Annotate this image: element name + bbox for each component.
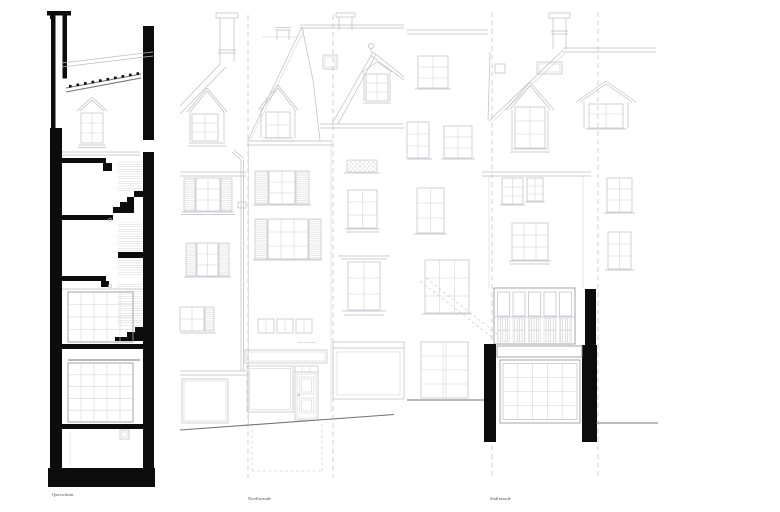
label-nordfassade: Nordfassade (248, 496, 271, 501)
chimney-section (47, 11, 71, 132)
window-b1 (407, 122, 432, 159)
attic-dormer (77, 97, 107, 148)
pediment-window (338, 256, 390, 315)
architectural-sheet: Querschnitt Nordfassade Südfassade (0, 0, 780, 512)
window-grid-lower (68, 360, 140, 422)
window-pair-upper (500, 178, 545, 205)
dormer-window (506, 82, 554, 152)
window-middle (509, 223, 551, 264)
shop-window (247, 366, 293, 412)
label-querschnitt: Querschnitt (52, 492, 74, 497)
stair-dashed-lines (420, 278, 497, 338)
window-mid (345, 190, 380, 232)
party-wall-right (582, 289, 597, 442)
window-c (414, 188, 447, 234)
chimney (336, 13, 355, 30)
label-suedfassade: Südfassade (490, 496, 511, 501)
dormer-window (187, 88, 227, 146)
window-with-shutters-row2 (253, 219, 322, 260)
window-b2 (441, 126, 475, 159)
shopfront-left (180, 371, 246, 423)
left-neighbour-building (180, 13, 246, 423)
shop-sign-band (245, 350, 327, 363)
right-neighbour-building (576, 81, 636, 270)
left-neighbour-building (407, 30, 497, 398)
window-i (605, 232, 634, 270)
small-window-row (258, 319, 312, 333)
dormer-window (258, 85, 298, 141)
chimney (549, 13, 570, 49)
dormer-window (576, 81, 636, 129)
suedfassade-drawing (407, 12, 658, 478)
roof (482, 48, 656, 176)
street-line (180, 415, 394, 431)
basement-outline (252, 424, 322, 471)
party-wall-left (484, 344, 496, 442)
window-with-shutters-3 (180, 307, 216, 333)
cornice (407, 30, 488, 34)
roof-vent-box (323, 55, 337, 69)
window-with-shutters-row1 (253, 171, 311, 205)
roof-chimney (276, 28, 291, 41)
staircase-section (108, 160, 143, 341)
querschnitt-drawing (47, 11, 155, 487)
chimney (216, 13, 238, 62)
roof-assembly (62, 52, 153, 155)
base-room (70, 430, 129, 466)
window-with-shutters-2 (184, 243, 231, 277)
nordfassade-drawing (180, 13, 404, 478)
balcony-rail (344, 160, 380, 173)
architectural-drawing-svg: Querschnitt Nordfassade Südfassade (0, 0, 780, 512)
window-with-shutters-1 (181, 178, 235, 215)
subject-building (245, 27, 337, 471)
beam-band (497, 346, 582, 357)
loggia-grid-band (494, 288, 575, 344)
ground-floor-window (500, 360, 580, 423)
downpipe (232, 150, 246, 371)
skylights (495, 62, 562, 74)
subject-building (482, 13, 656, 442)
shop-door (295, 366, 318, 420)
window-a (415, 56, 451, 89)
window-e (421, 342, 468, 398)
window-d (422, 260, 472, 314)
window-h (604, 178, 635, 213)
shopfront-right (333, 342, 404, 399)
